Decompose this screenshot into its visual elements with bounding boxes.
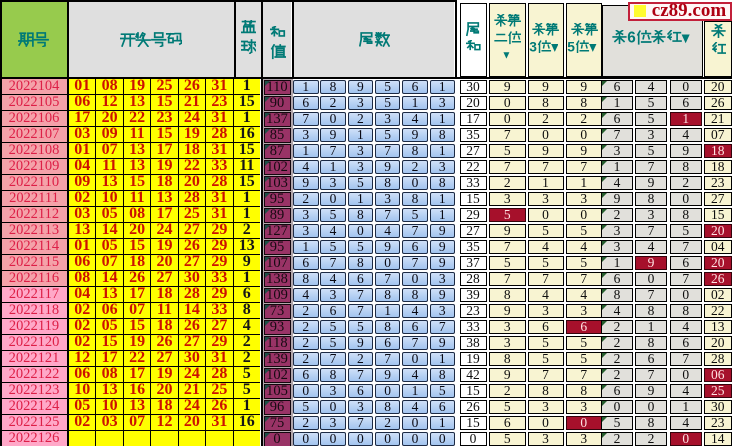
svg-text:5: 5 <box>567 40 575 54</box>
svg-text:3: 3 <box>529 40 537 54</box>
svg-text:6: 6 <box>627 30 636 45</box>
